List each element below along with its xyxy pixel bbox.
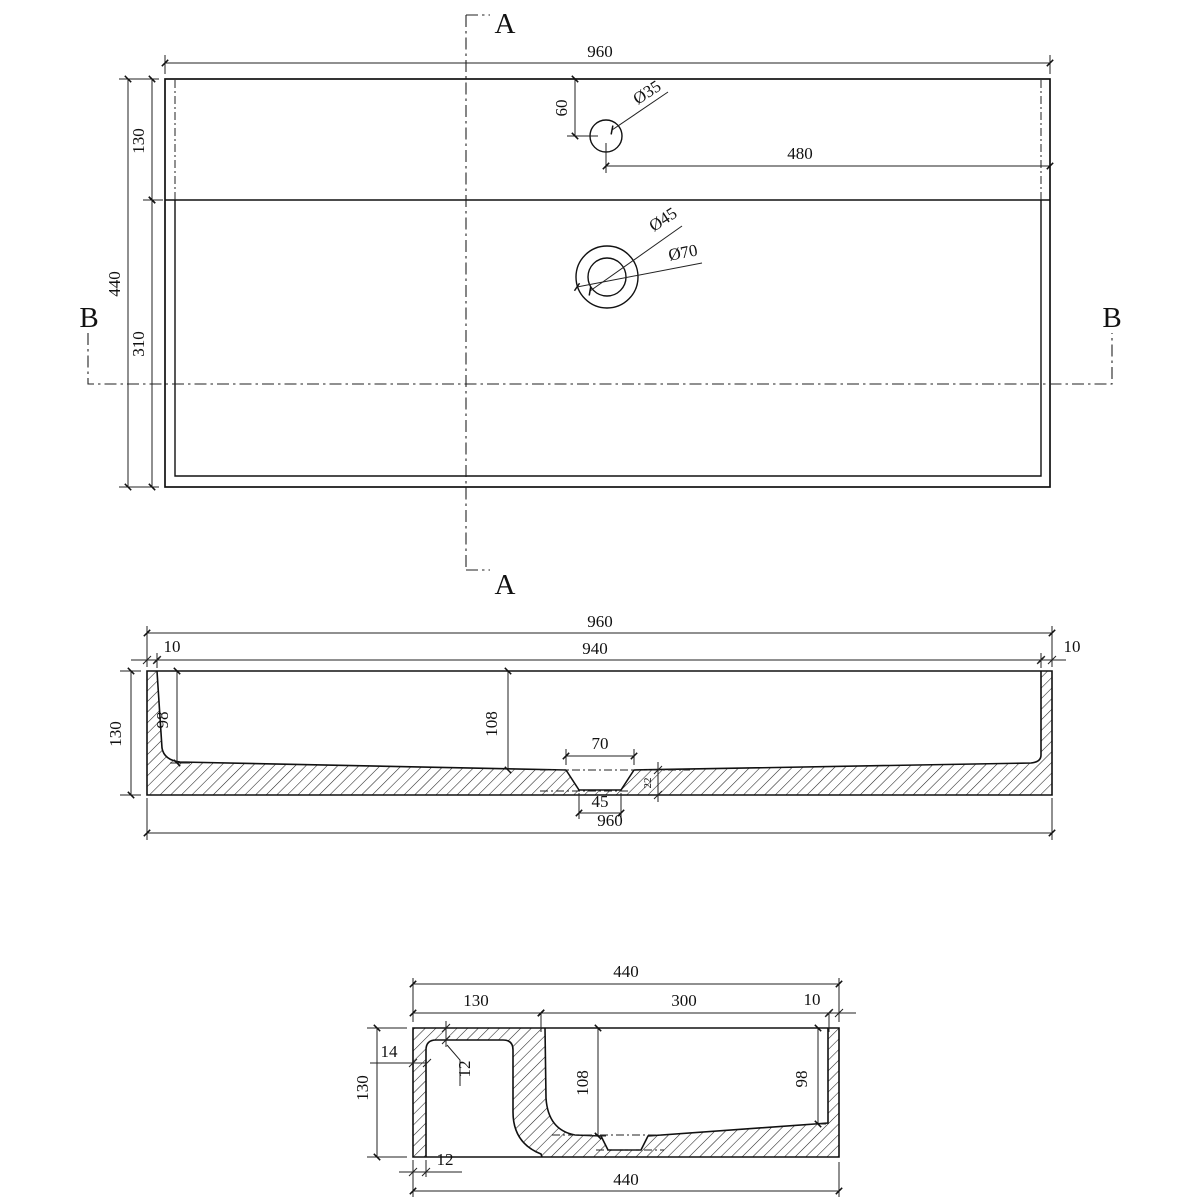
- svg-text:70: 70: [592, 734, 609, 753]
- svg-text:22: 22: [642, 778, 654, 789]
- svg-text:440: 440: [105, 271, 124, 297]
- svg-text:310: 310: [129, 331, 148, 357]
- front-dim-center-depth: 108: [482, 671, 508, 770]
- svg-text:12: 12: [437, 1150, 454, 1169]
- svg-text:940: 940: [582, 639, 608, 658]
- side-section-view: 440 130 300 10 130 14: [353, 962, 856, 1197]
- svg-text:960: 960: [597, 811, 623, 830]
- svg-text:440: 440: [613, 962, 639, 981]
- front-dim-drain-top: 70: [566, 734, 634, 765]
- side-dim-center-depth: 108: [573, 1028, 606, 1136]
- svg-text:130: 130: [106, 721, 125, 747]
- front-dim-inner-width: 940: [157, 639, 1041, 668]
- section-label-a-bottom: A: [495, 569, 516, 601]
- side-dim-basin-width: 300: [541, 991, 829, 1032]
- svg-text:108: 108: [573, 1070, 592, 1096]
- section-label-b-left: B: [79, 302, 98, 334]
- svg-text:10: 10: [1064, 637, 1081, 656]
- front-section-view: 960 940 10 10 130 98: [106, 612, 1081, 840]
- svg-text:98: 98: [153, 712, 172, 729]
- svg-text:130: 130: [129, 128, 148, 154]
- svg-text:10: 10: [164, 637, 181, 656]
- svg-text:60: 60: [552, 100, 571, 117]
- section-label-b-right: B: [1102, 302, 1121, 334]
- svg-text:10: 10: [804, 990, 821, 1009]
- plan-view: A A B B 960 440 130 310: [79, 8, 1121, 601]
- plan-outer-outline: [165, 79, 1050, 487]
- svg-text:45: 45: [592, 792, 609, 811]
- side-dim-right-depth: 98: [792, 1028, 826, 1124]
- svg-text:108: 108: [482, 711, 501, 737]
- svg-text:960: 960: [587, 42, 613, 61]
- front-dim-right-wall: 10: [1037, 637, 1081, 664]
- section-label-a-top: A: [495, 8, 516, 40]
- plan-dim-basin-depth: 310: [129, 200, 152, 487]
- plan-dim-deck-depth: 130: [129, 79, 163, 200]
- front-section-material: [147, 671, 1052, 795]
- svg-text:960: 960: [587, 612, 613, 631]
- svg-text:98: 98: [792, 1071, 811, 1088]
- side-dim-base-thickness: 12: [399, 1150, 462, 1177]
- plan-dim-overall-width: 960: [165, 42, 1050, 74]
- side-dim-deck-width: 130: [413, 991, 541, 1032]
- svg-text:12: 12: [455, 1061, 474, 1078]
- svg-text:14: 14: [381, 1042, 399, 1061]
- svg-text:130: 130: [353, 1075, 372, 1101]
- sink-technical-drawing: A A B B 960 440 130 310: [0, 0, 1200, 1200]
- side-dim-bottom-width: 440: [413, 1162, 839, 1197]
- svg-text:480: 480: [787, 144, 813, 163]
- svg-text:440: 440: [613, 1170, 639, 1189]
- svg-text:300: 300: [671, 991, 697, 1010]
- side-section-material: [413, 1028, 839, 1157]
- front-dim-height: 130: [106, 671, 141, 795]
- svg-text:130: 130: [463, 991, 489, 1010]
